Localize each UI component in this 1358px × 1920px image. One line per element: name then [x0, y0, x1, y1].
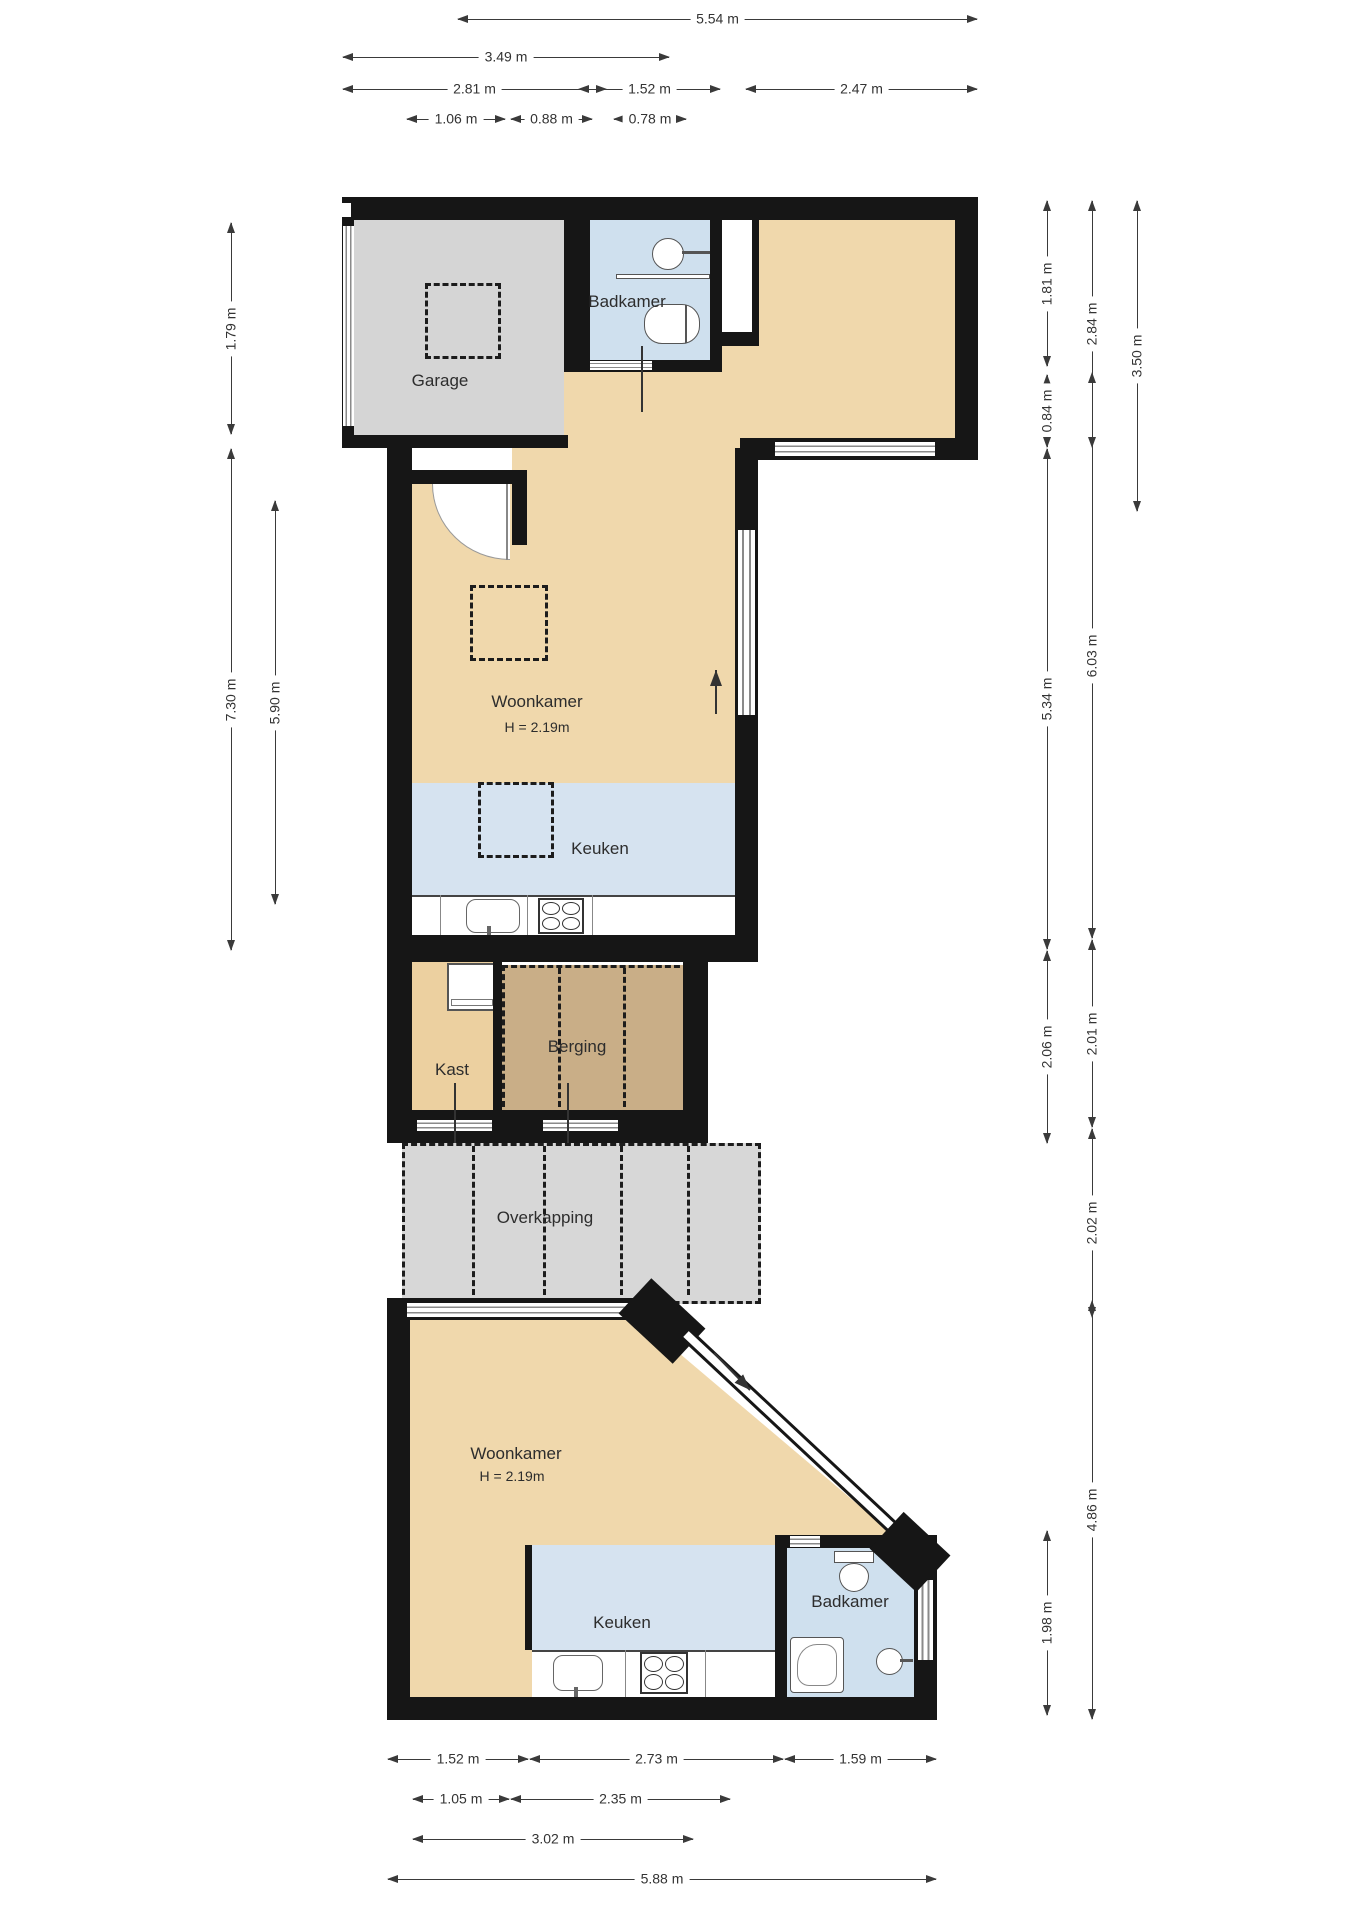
kitchen-sink-icon — [466, 899, 520, 933]
garage-badkamer-wall — [564, 220, 590, 372]
kast-berging-wall — [493, 962, 502, 1115]
keuken-beneden-floor — [532, 1545, 775, 1650]
room-label-keuken-beneden: Keuken — [593, 1613, 651, 1633]
dim-left-730: 7.30 m — [224, 448, 238, 951]
shower-tray-icon — [797, 1644, 837, 1686]
keuken-beneden-stub-wall — [525, 1545, 532, 1650]
keuken-badkamer-wall — [775, 1535, 787, 1697]
counter-divider — [625, 1650, 626, 1697]
berging-right-wall — [683, 962, 708, 1110]
room-label-badkamer-beneden: Badkamer — [811, 1592, 888, 1612]
floor-plan-canvas: Garage Badkamer Woonkamer H = 2.19m Keuk… — [0, 0, 1358, 1920]
entry-nook-wall-h — [412, 470, 527, 484]
overkapping-divider — [620, 1146, 623, 1295]
counter-divider — [440, 895, 441, 935]
dim-top-554: 5.54 m — [457, 12, 978, 26]
dim-top-247: 2.47 m — [745, 82, 978, 96]
dim-bottom-152: 1.52 m — [387, 1752, 529, 1766]
lower-left-wall — [387, 1298, 410, 1720]
washing-machine-icon — [447, 963, 497, 1011]
room-label-berging: Berging — [548, 1037, 607, 1057]
void-right-wall — [752, 220, 759, 332]
upper-top-wall — [342, 197, 978, 220]
counter-divider — [527, 895, 528, 935]
berging-divider — [623, 968, 626, 1107]
height-note-woonkamer-beneden: H = 2.19m — [480, 1468, 545, 1484]
dim-right-206: 2.06 m — [1040, 950, 1054, 1144]
stove-icon — [538, 898, 584, 934]
room-label-kast: Kast — [435, 1060, 469, 1080]
garage-corner-notch — [342, 203, 351, 217]
dim-right-486: 4.86 m — [1085, 1300, 1099, 1720]
room-label-woonkamer-beneden: Woonkamer — [470, 1444, 561, 1464]
counter-divider — [592, 895, 593, 935]
dim-bottom-588: 5.88 m — [387, 1872, 937, 1886]
room-label-garage: Garage — [412, 371, 469, 391]
kitchen-tap-icon — [574, 1687, 578, 1697]
dim-top-152: 1.52 m — [578, 82, 721, 96]
stove-icon — [640, 1652, 688, 1694]
garage-skylight-marker — [425, 283, 501, 359]
dim-right-603: 6.03 m — [1085, 372, 1099, 939]
room-label-keuken-midden: Keuken — [571, 839, 629, 859]
height-note-woonkamer-midden: H = 2.19m — [505, 719, 570, 735]
dim-top-349: 3.49 m — [342, 50, 670, 64]
overkapping-divider — [687, 1146, 690, 1295]
middle-left-wall — [387, 448, 412, 1140]
berging-sliding-door — [543, 1120, 618, 1131]
dim-bottom-302: 3.02 m — [412, 1832, 694, 1846]
dim-top-106: 1.06 m — [406, 112, 506, 126]
upper-right-room-window — [775, 442, 935, 456]
dim-right-202: 2.02 m — [1085, 1128, 1099, 1318]
kitchen-sink-icon — [553, 1655, 603, 1691]
sink-tap-icon — [682, 251, 710, 254]
void-strip — [722, 220, 752, 332]
garage-bottom-wall — [342, 435, 568, 448]
overkapping-divider — [472, 1146, 475, 1295]
dim-right-181: 1.81 m — [1040, 200, 1054, 367]
woonkamer-skylight-marker — [470, 585, 548, 661]
lower-bottom-wall — [387, 1697, 937, 1720]
shelf-icon — [616, 274, 710, 279]
void-left-wall — [710, 220, 722, 372]
keuken-bottom-wall — [387, 935, 758, 962]
dim-left-590: 5.90 m — [268, 500, 282, 905]
sink-icon — [876, 1648, 903, 1675]
toilet-tank-icon — [834, 1551, 874, 1563]
sink-icon — [652, 238, 684, 270]
sink-tap-icon — [900, 1659, 913, 1662]
middle-right-window — [738, 530, 755, 715]
dim-left-179: 1.79 m — [224, 222, 238, 435]
room-label-woonkamer-midden: Woonkamer — [491, 692, 582, 712]
room-label-overkapping: Overkapping — [497, 1208, 593, 1228]
lower-top-window — [407, 1303, 630, 1317]
dim-bottom-235: 2.35 m — [510, 1792, 731, 1806]
dim-bottom-159: 1.59 m — [784, 1752, 937, 1766]
dim-right-198: 1.98 m — [1040, 1530, 1054, 1716]
keuken-skylight-marker — [478, 782, 554, 858]
dim-bottom-105: 1.05 m — [412, 1792, 510, 1806]
entry-nook-wall-v — [512, 470, 527, 545]
badkamer-boven-door-tick — [641, 346, 643, 412]
dim-top-078: 0.78 m — [613, 112, 687, 126]
upper-right-wall — [955, 197, 978, 460]
counter-divider — [705, 1650, 706, 1697]
dim-right-350: 3.50 m — [1130, 200, 1144, 512]
entry-arrow-icon — [714, 1353, 750, 1390]
garage-door — [343, 226, 354, 426]
badkamer-beneden-window — [918, 1580, 933, 1660]
dim-bottom-273: 2.73 m — [529, 1752, 784, 1766]
dim-right-201: 2.01 m — [1085, 939, 1099, 1128]
void-step-wall — [722, 332, 759, 346]
badkamer-beneden-door — [790, 1536, 820, 1547]
dim-top-281: 2.81 m — [342, 82, 607, 96]
dim-right-534: 5.34 m — [1040, 448, 1054, 950]
room-label-badkamer-boven: Badkamer — [588, 292, 665, 312]
door-leaf-icon — [506, 484, 508, 560]
dim-top-088: 0.88 m — [510, 112, 593, 126]
dim-right-084: 0.84 m — [1040, 374, 1054, 448]
